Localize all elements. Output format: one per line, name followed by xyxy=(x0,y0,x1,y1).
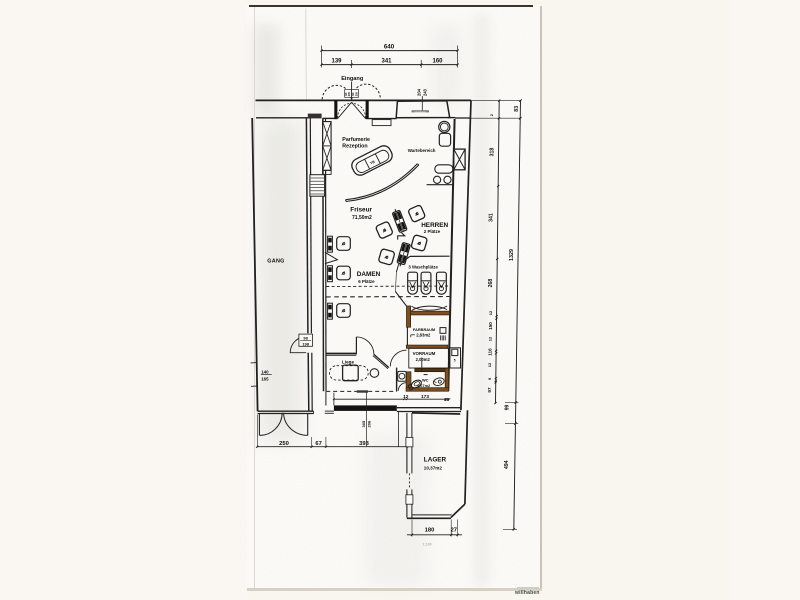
svg-text:83: 83 xyxy=(514,106,520,112)
svg-text:341: 341 xyxy=(381,59,392,65)
svg-text:12: 12 xyxy=(403,394,409,400)
svg-text:160: 160 xyxy=(432,59,443,65)
svg-text:12: 12 xyxy=(488,310,493,315)
svg-text:243: 243 xyxy=(423,88,428,96)
svg-text:393: 393 xyxy=(359,441,369,447)
svg-text:6 Plätze: 6 Plätze xyxy=(358,279,375,284)
svg-text:2: 2 xyxy=(490,114,494,116)
svg-text:2 Plätze: 2 Plätze xyxy=(424,229,441,234)
svg-text:165: 165 xyxy=(261,376,269,381)
svg-text:1:100: 1:100 xyxy=(422,542,431,546)
svg-text:318: 318 xyxy=(489,148,495,157)
svg-text:1329: 1329 xyxy=(509,249,515,261)
svg-text:268: 268 xyxy=(488,279,494,288)
svg-text:GANG: GANG xyxy=(267,258,284,264)
svg-text:DAMEN: DAMEN xyxy=(357,271,381,278)
svg-text:FARBRAUM: FARBRAUM xyxy=(413,327,435,332)
svg-text:5: 5 xyxy=(454,359,456,363)
svg-text:HERREN: HERREN xyxy=(421,222,448,229)
svg-text:2,83m2: 2,83m2 xyxy=(416,333,431,338)
svg-text:150: 150 xyxy=(488,322,493,330)
svg-text:Wartebereich: Wartebereich xyxy=(408,148,436,153)
svg-text:71,50m2: 71,50m2 xyxy=(352,215,372,221)
svg-text:3 Waschplätze: 3 Waschplätze xyxy=(408,264,438,269)
svg-text:Rezeption: Rezeption xyxy=(342,143,367,149)
svg-text:204: 204 xyxy=(416,88,421,96)
svg-text:305: 305 xyxy=(361,420,366,427)
svg-text:schaufenster: schaufenster xyxy=(415,110,426,113)
svg-text:12: 12 xyxy=(488,336,493,341)
svg-text:Eingang: Eingang xyxy=(341,76,364,82)
svg-text:99: 99 xyxy=(505,405,511,411)
svg-text:139: 139 xyxy=(331,59,342,65)
svg-text:1,67m2: 1,67m2 xyxy=(417,383,431,388)
svg-text:Parfumerie: Parfumerie xyxy=(342,137,370,143)
svg-text:341: 341 xyxy=(489,213,495,222)
svg-text:205: 205 xyxy=(348,92,351,97)
svg-text:LAGER: LAGER xyxy=(424,457,447,464)
svg-text:250: 250 xyxy=(279,441,289,447)
svg-text:98: 98 xyxy=(303,335,308,340)
svg-text:67: 67 xyxy=(315,441,321,447)
svg-text:116: 116 xyxy=(487,348,492,356)
svg-text:198: 198 xyxy=(302,341,309,346)
svg-text:WC: WC xyxy=(422,378,429,383)
svg-text:140: 140 xyxy=(261,369,269,374)
svg-text:180: 180 xyxy=(425,528,435,534)
svg-text:494: 494 xyxy=(504,460,510,469)
svg-text:2,00m2: 2,00m2 xyxy=(416,357,431,362)
svg-text:640: 640 xyxy=(384,44,395,51)
svg-text:Liege: Liege xyxy=(342,359,354,364)
svg-text:27: 27 xyxy=(451,528,457,534)
svg-text:18: 18 xyxy=(444,397,450,403)
svg-text:97: 97 xyxy=(487,387,492,393)
svg-text:206: 206 xyxy=(366,420,371,427)
svg-text:12: 12 xyxy=(487,362,492,367)
svg-text:VORRAUM: VORRAUM xyxy=(413,351,436,356)
svg-text:173: 173 xyxy=(421,394,429,400)
svg-text:8: 8 xyxy=(488,378,492,380)
svg-text:205: 205 xyxy=(355,92,358,97)
svg-text:Friseur: Friseur xyxy=(350,207,372,214)
svg-text:10,37m2: 10,37m2 xyxy=(424,465,443,470)
